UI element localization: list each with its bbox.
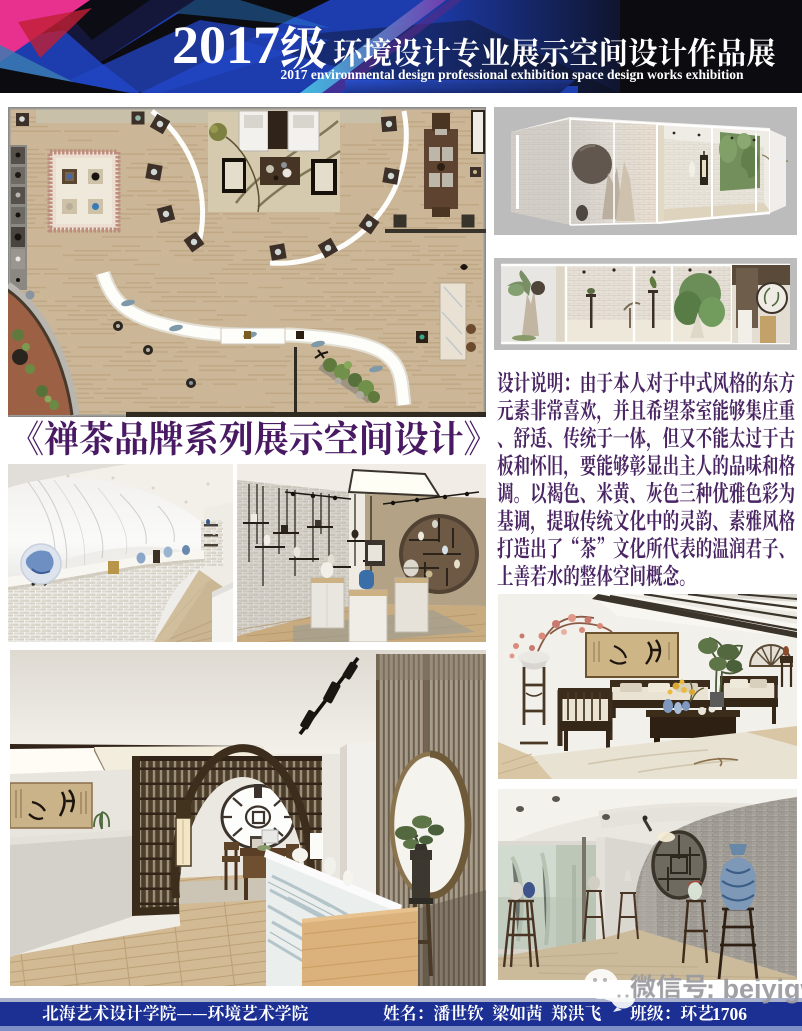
svg-text:: beiyigw: : beiyigw (706, 974, 802, 1004)
svg-text:2017 environmental design prof: 2017 environmental design professional e… (280, 67, 744, 82)
svg-text:2017: 2017 (172, 15, 280, 75)
